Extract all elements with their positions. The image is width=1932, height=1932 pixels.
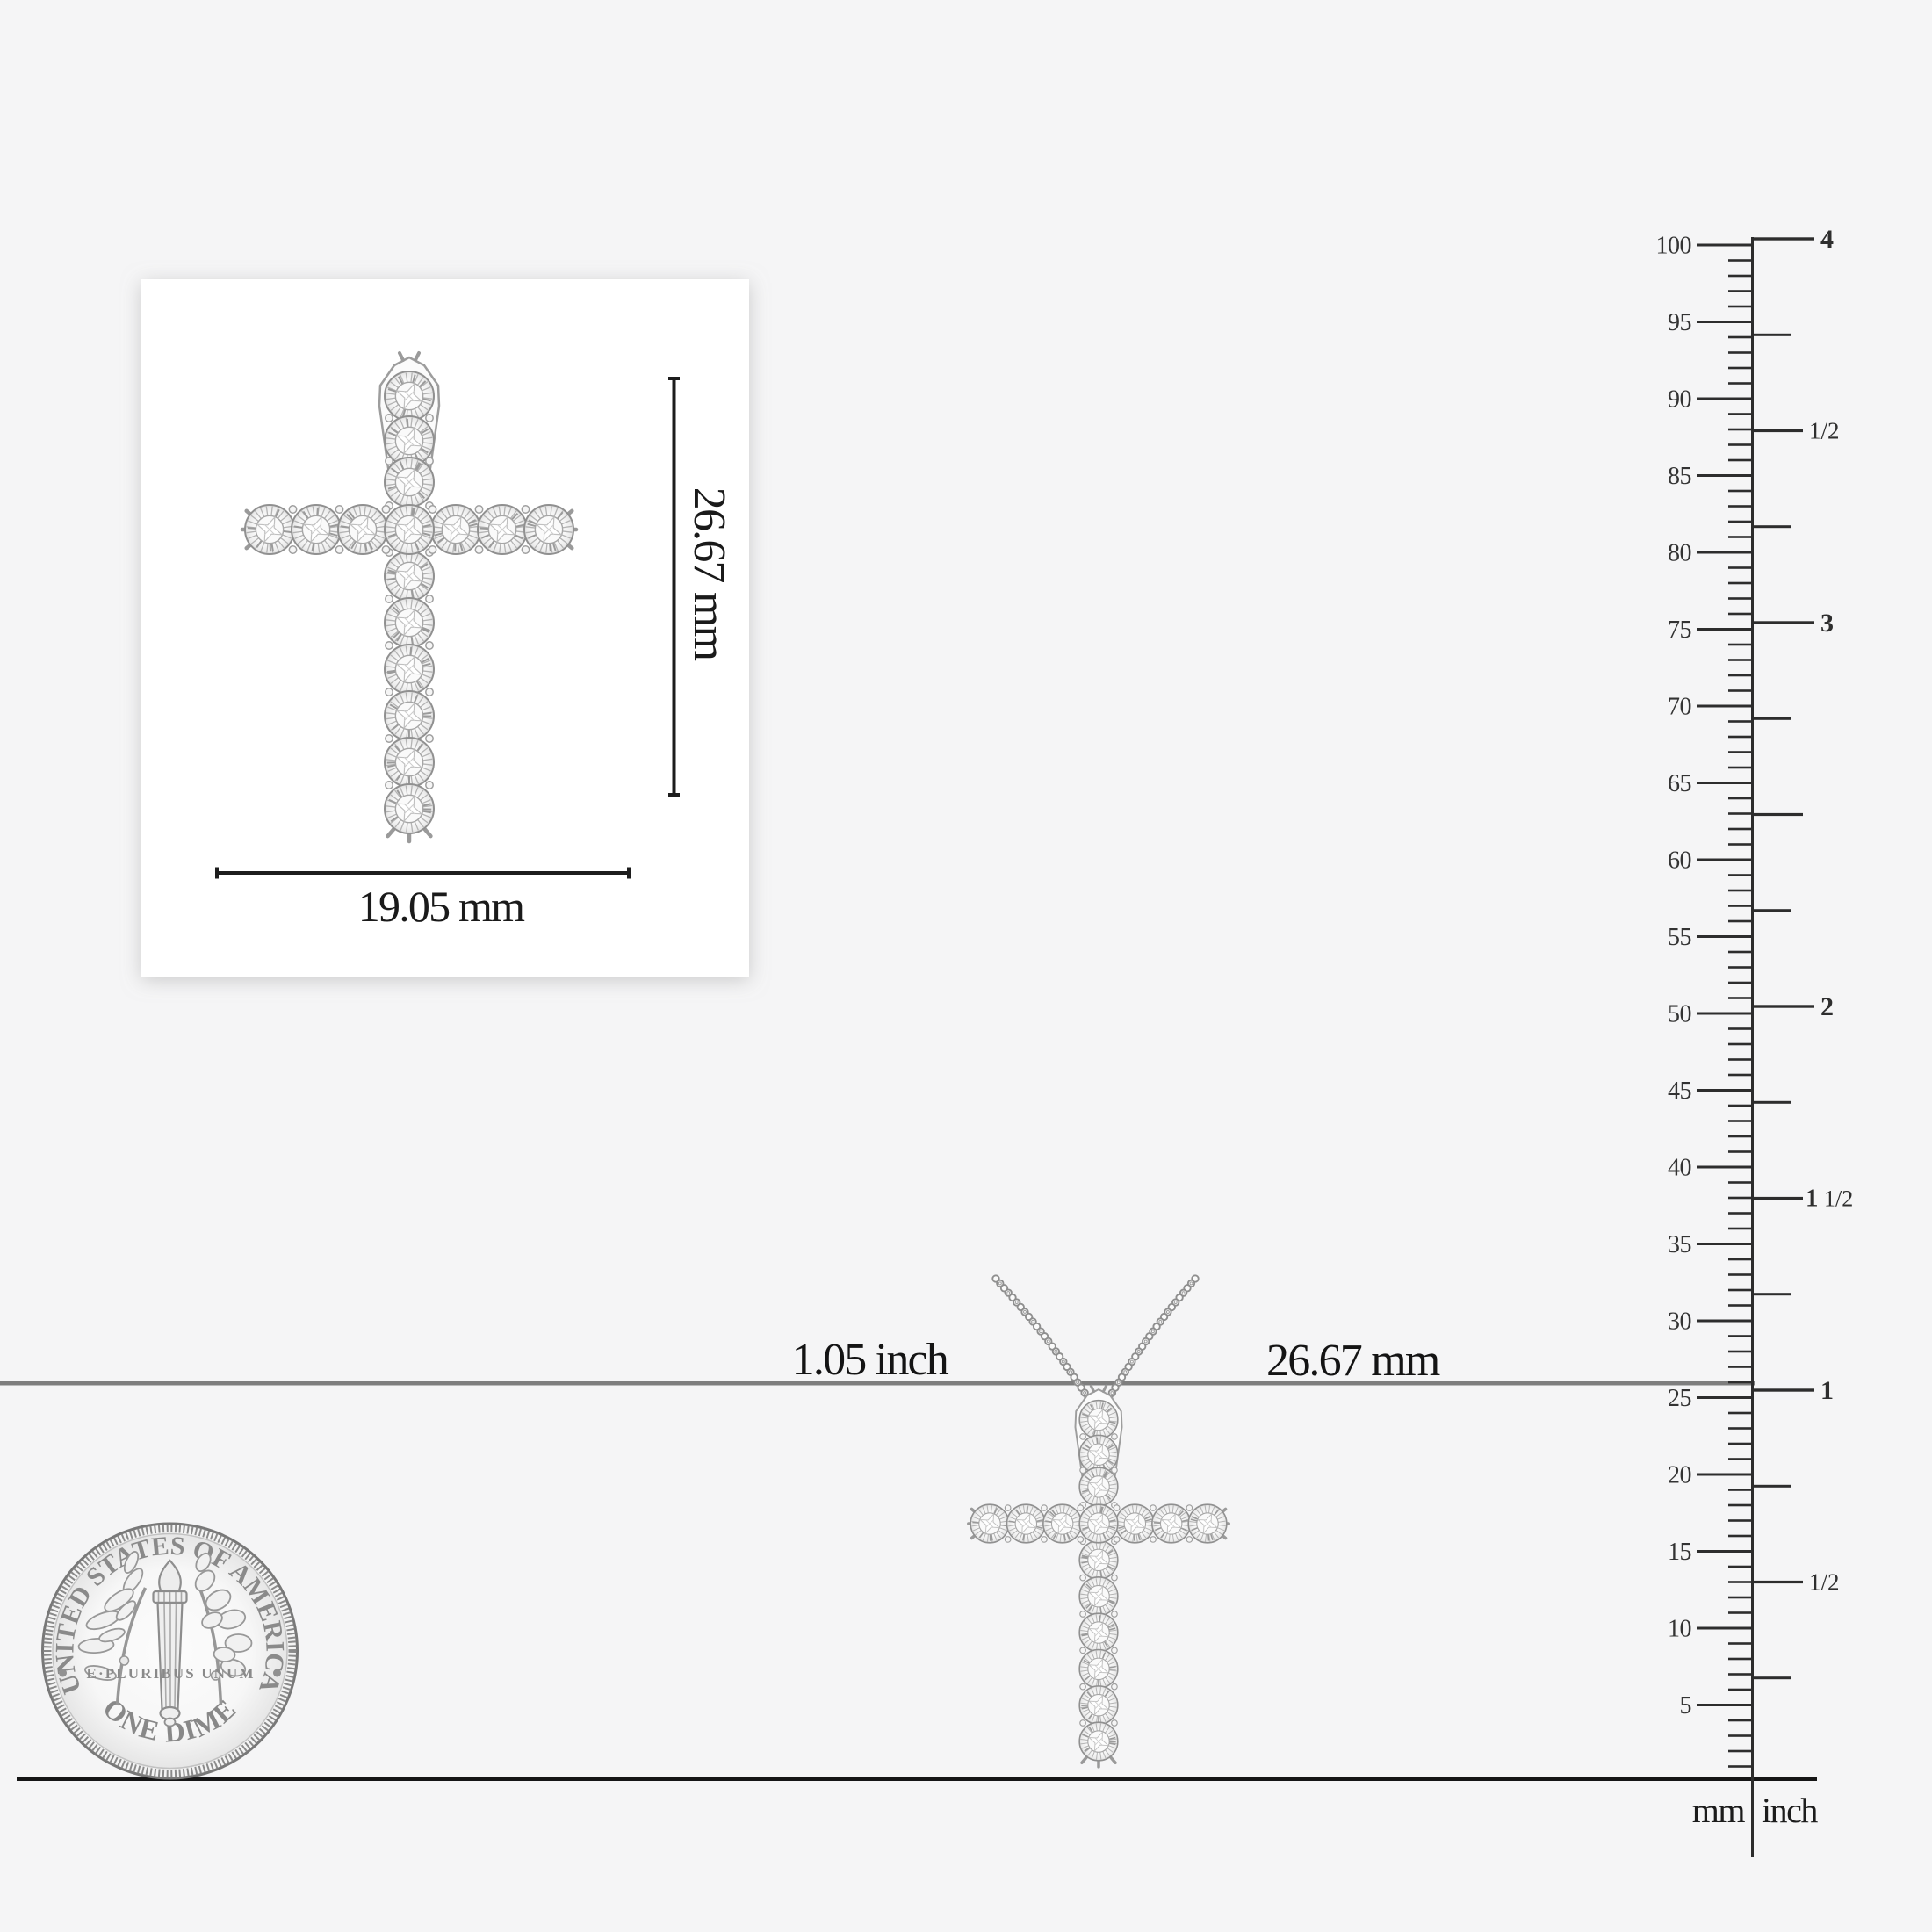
svg-text:55: 55 [1668,924,1691,951]
svg-text:20: 20 [1668,1462,1691,1489]
svg-text:mm: mm [1692,1791,1746,1830]
svg-text:26.67 mm: 26.67 mm [684,487,734,661]
svg-text:1 1/2: 1 1/2 [1806,1185,1853,1213]
svg-text:3: 3 [1820,609,1834,638]
svg-text:85: 85 [1668,463,1691,490]
svg-text:60: 60 [1668,847,1691,875]
svg-text:25: 25 [1668,1385,1691,1412]
svg-text:2: 2 [1820,992,1834,1021]
svg-text:15: 15 [1668,1539,1691,1566]
svg-text:1/2: 1/2 [1809,1569,1840,1596]
svg-text:90: 90 [1668,386,1691,414]
svg-text:10: 10 [1668,1616,1691,1643]
svg-text:100: 100 [1656,233,1692,260]
svg-text:5: 5 [1680,1692,1692,1719]
svg-text:65: 65 [1668,770,1691,797]
svg-text:1: 1 [1820,1376,1834,1405]
svg-text:50: 50 [1668,1001,1691,1028]
svg-text:19.05 mm: 19.05 mm [358,882,525,931]
svg-text:inch: inch [1762,1791,1818,1830]
svg-text:E·PLURIBUS UNUM: E·PLURIBUS UNUM [87,1665,254,1682]
svg-text:1.05 inch: 1.05 inch [792,1335,949,1385]
svg-text:26.67 mm: 26.67 mm [1266,1336,1440,1386]
svg-text:95: 95 [1668,309,1691,336]
svg-text:80: 80 [1668,540,1691,567]
svg-text:45: 45 [1668,1078,1691,1105]
svg-text:30: 30 [1668,1308,1691,1336]
svg-text:70: 70 [1668,694,1691,721]
svg-text:4: 4 [1820,225,1834,254]
svg-text:75: 75 [1668,616,1691,644]
svg-text:40: 40 [1668,1155,1691,1182]
svg-text:1/2: 1/2 [1809,418,1840,444]
svg-text:35: 35 [1668,1231,1691,1258]
